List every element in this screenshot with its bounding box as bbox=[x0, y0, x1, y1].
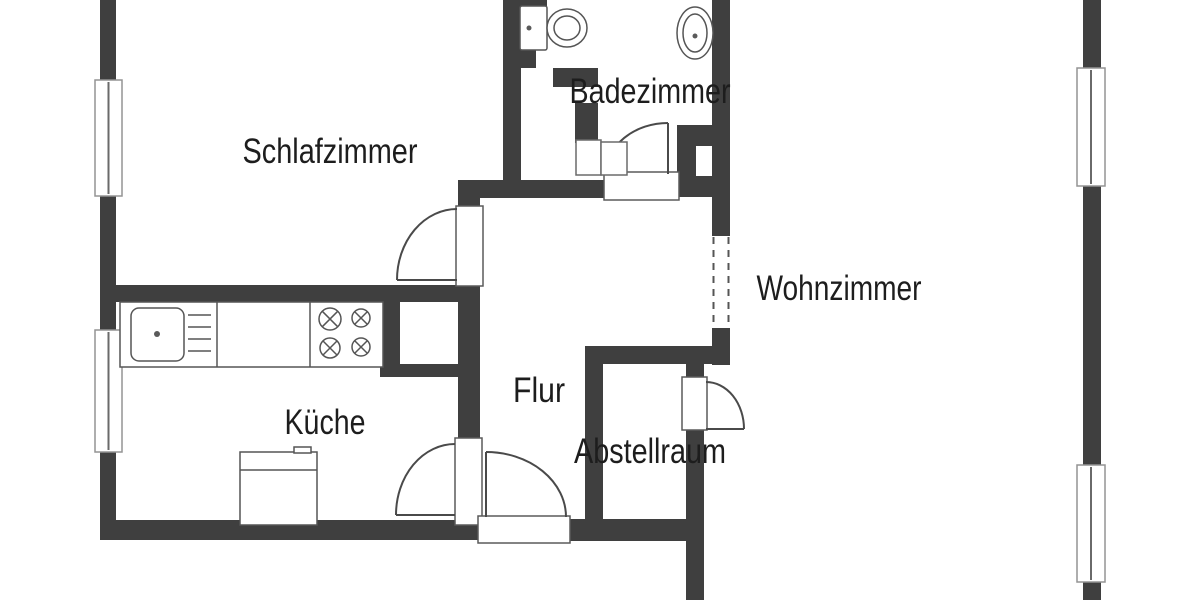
wall bbox=[458, 285, 480, 440]
floor-plan-drawing: Schlafzimmer Badezimmer Wohnzimmer Flur … bbox=[0, 0, 1200, 600]
bathroom-cabinet bbox=[576, 140, 627, 175]
wall bbox=[568, 519, 686, 541]
label-flur: Flur bbox=[513, 371, 565, 410]
wall bbox=[478, 180, 606, 198]
window-right-upper bbox=[1077, 68, 1105, 186]
wall bbox=[712, 0, 730, 237]
label-badezimmer: Badezimmer bbox=[570, 72, 731, 111]
label-abstellraum: Abstellraum bbox=[574, 432, 726, 471]
washbasin bbox=[677, 7, 713, 59]
storage-room-door bbox=[682, 377, 744, 430]
label-wohnzimmer: Wohnzimmer bbox=[757, 269, 922, 308]
bedroom-door bbox=[397, 206, 483, 286]
appliance-handle bbox=[294, 447, 311, 453]
wall bbox=[1083, 582, 1101, 600]
wall-niche bbox=[696, 146, 712, 176]
window-left-upper bbox=[95, 80, 122, 196]
kitchen-appliance bbox=[240, 447, 317, 525]
wall bbox=[458, 180, 480, 208]
wall bbox=[1083, 0, 1101, 68]
label-schlafzimmer: Schlafzimmer bbox=[243, 132, 418, 171]
shaft-opening bbox=[400, 302, 458, 364]
window-left-lower bbox=[95, 330, 122, 452]
window-right-lower bbox=[1077, 465, 1105, 582]
floor-plan: Schlafzimmer Badezimmer Wohnzimmer Flur … bbox=[0, 0, 1200, 600]
wall bbox=[686, 364, 704, 378]
kitchen-door bbox=[396, 438, 482, 525]
entrance-door bbox=[478, 452, 570, 543]
faucet bbox=[154, 331, 160, 337]
wall bbox=[503, 0, 521, 188]
wall-stub bbox=[519, 50, 536, 68]
kitchen-sink bbox=[131, 308, 184, 361]
wall bbox=[100, 196, 116, 330]
label-kueche: Küche bbox=[285, 403, 366, 442]
wall bbox=[100, 0, 116, 80]
living-room-passage bbox=[711, 236, 731, 328]
wall bbox=[1083, 186, 1101, 465]
toilet bbox=[520, 6, 587, 50]
wall bbox=[585, 346, 730, 364]
